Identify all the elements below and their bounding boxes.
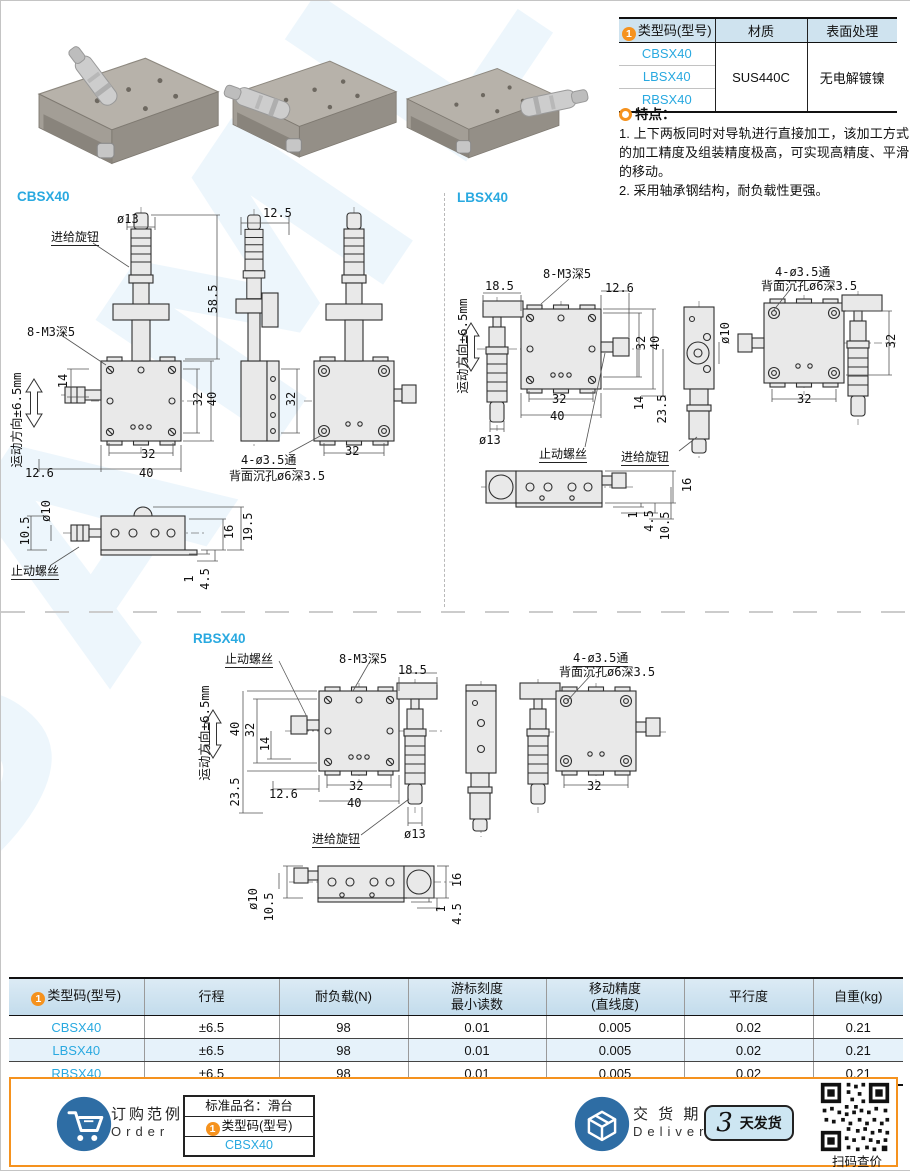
delivery-days: 3	[716, 1110, 733, 1136]
badge-1-icon: 1	[622, 27, 636, 41]
dim-32: 32	[884, 311, 898, 371]
dim-40: 40	[205, 369, 219, 429]
spec-header-weight: 自重(kg)	[813, 978, 903, 1016]
dim-4-5: 4.5	[642, 491, 656, 551]
standard-product-name: 标准品名：滑台	[185, 1097, 313, 1117]
spec-header-parallel: 平行度	[684, 978, 813, 1016]
weight-value: 0.21	[813, 1016, 903, 1039]
parallel-value: 0.02	[684, 1039, 813, 1062]
dim-14: 14	[632, 373, 646, 433]
footer-bar: 订购范例 Order 标准品名：滑台 1类型码(型号) CBSX40 交 货 期…	[9, 1077, 898, 1167]
dim-phi13: ø13	[404, 827, 426, 841]
surface-value: 无电解镀镍	[807, 43, 897, 113]
load-value: 98	[279, 1016, 408, 1039]
stop-screw-label: 止动螺丝	[11, 564, 59, 580]
dim-40: 40	[550, 409, 564, 423]
dim-32: 32	[634, 313, 648, 373]
example-model-link[interactable]: CBSX40	[185, 1137, 313, 1154]
feed-knob-label: 进给旋钮	[312, 832, 360, 848]
order-example-box: 标准品名：滑台 1类型码(型号) CBSX40	[183, 1095, 315, 1157]
dim-14: 14	[56, 351, 70, 411]
dim-32: 32	[349, 779, 363, 793]
feed-knob-label: 进给旋钮	[621, 450, 669, 466]
accuracy-value: 0.005	[546, 1016, 684, 1039]
weight-value: 0.21	[813, 1039, 903, 1062]
spec-table: 1类型码(型号) 行程 耐负载(N) 游标刻度 最小读数 移动精度 (直线度) …	[9, 977, 903, 1086]
dim-16: 16	[222, 502, 236, 562]
stop-screw-label: 止动螺丝	[225, 652, 273, 668]
thru-hole-note: 4-ø3.5通	[241, 453, 296, 469]
dim-1: 1	[434, 879, 448, 939]
accuracy-value: 0.005	[546, 1039, 684, 1062]
dim-12-5: 12.5	[263, 206, 292, 220]
dim-32: 32	[141, 447, 155, 461]
spec-row-cbsx40: CBSX40 ±6.5 98 0.01 0.005 0.02 0.21	[9, 1016, 903, 1039]
dim-18-5: 18.5	[398, 663, 427, 677]
dim-32: 32	[797, 392, 811, 406]
type-table-header-material: 材质	[715, 18, 807, 43]
badge-1-icon: 1	[206, 1122, 220, 1136]
photo-3	[407, 69, 589, 158]
dim-19-5: 19.5	[241, 497, 255, 557]
dim-18-5: 18.5	[485, 279, 514, 293]
features-title: 特点：	[619, 103, 909, 123]
motion-direction-label: 运动方向±6.5mm	[456, 271, 470, 421]
model-link-cbsx40[interactable]: CBSX40	[9, 1016, 144, 1039]
model-link-cbsx40[interactable]: CBSX40	[619, 43, 715, 66]
load-value: 98	[279, 1039, 408, 1062]
thread-note: 8-M3深5	[339, 652, 387, 666]
dim-phi13: ø13	[479, 433, 501, 447]
dim-40: 40	[139, 466, 153, 480]
feed-knob-label: 进给旋钮	[51, 230, 99, 246]
type-table-header-model: 1类型码(型号)	[619, 18, 715, 43]
spec-header-vernier: 游标刻度 最小读数	[408, 978, 546, 1016]
dim-4-5: 4.5	[198, 549, 212, 609]
dim-4-5: 4.5	[450, 884, 464, 944]
delivery-days-pill: 3 天发货	[704, 1105, 794, 1141]
delivery-unit: 天发货	[740, 1113, 782, 1133]
dim-23-5: 23.5	[655, 379, 669, 439]
feature-ring-icon	[619, 108, 632, 121]
dim-12-6: 12.6	[605, 281, 634, 295]
catalog-page: SAMLB	[0, 0, 910, 1171]
dim-32: 32	[552, 392, 566, 406]
section-title-rbsx40: RBSX40	[193, 631, 246, 646]
feature-item-2: 2. 采用轴承钢结构，耐负载性更强。	[619, 182, 909, 201]
dim-phi10: ø10	[246, 869, 260, 929]
dim-40: 40	[228, 699, 242, 759]
spec-header-load: 耐负载(N)	[279, 978, 408, 1016]
dim-32: 32	[345, 444, 359, 458]
dim-12-6: 12.6	[25, 466, 54, 480]
dim-58-5: 58.5	[206, 269, 220, 329]
dim-32: 32	[284, 369, 298, 429]
dim-1: 1	[626, 485, 640, 545]
dim-32: 32	[191, 369, 205, 429]
dim-40: 40	[347, 796, 361, 810]
thread-note: 8-M3深5	[543, 267, 591, 281]
section-title-cbsx40: CBSX40	[17, 189, 70, 204]
parallel-value: 0.02	[684, 1016, 813, 1039]
stop-screw-label: 止动螺丝	[539, 447, 587, 463]
dim-16: 16	[680, 455, 694, 515]
stroke-value: ±6.5	[144, 1016, 279, 1039]
dim-phi13: ø13	[117, 212, 139, 226]
spec-header-model: 1类型码(型号)	[9, 978, 144, 1016]
dim-32: 32	[243, 700, 257, 760]
type-table: 1类型码(型号) 材质 表面处理 CBSX40 LBSX40 RBSX40 SU…	[619, 17, 897, 113]
model-link-lbsx40[interactable]: LBSX40	[619, 66, 715, 89]
material-value: SUS440C	[715, 43, 807, 113]
spec-row-lbsx40: LBSX40 ±6.5 98 0.01 0.005 0.02 0.21	[9, 1039, 903, 1062]
cbore-note: 背面沉孔ø6深3.5	[559, 665, 655, 679]
model-link-lbsx40[interactable]: LBSX40	[9, 1039, 144, 1062]
cbore-note: 背面沉孔ø6深3.5	[761, 279, 857, 293]
feature-item-1: 1. 上下两板同时对导轨进行直接加工，该加工方式的加工精度及组装精度极高，可实现…	[619, 125, 909, 182]
qr-caption: 扫码查价	[817, 1151, 897, 1170]
dim-10-5: 10.5	[262, 877, 276, 937]
features-block: 特点： 1. 上下两板同时对导轨进行直接加工，该加工方式的加工精度及组装精度极高…	[619, 103, 909, 200]
delivery-box-icon	[573, 1095, 631, 1153]
dim-phi10: ø10	[39, 481, 53, 541]
cart-icon	[55, 1095, 113, 1153]
vernier-value: 0.01	[408, 1039, 546, 1062]
section-title-lbsx40: LBSX40	[457, 190, 508, 205]
photo-1	[39, 43, 218, 163]
dim-32: 32	[587, 779, 601, 793]
section-divider-horizontal	[1, 611, 910, 613]
motion-direction-label: 运动方向±6.5mm	[198, 658, 212, 808]
dim-1: 1	[182, 549, 196, 609]
stroke-value: ±6.5	[144, 1039, 279, 1062]
dim-23-5: 23.5	[228, 762, 242, 822]
cbore-note: 背面沉孔ø6深3.5	[229, 469, 325, 483]
section-divider-vertical	[444, 193, 445, 607]
dim-phi10: ø10	[718, 303, 732, 363]
dim-14: 14	[258, 714, 272, 774]
photo-2	[222, 61, 396, 157]
badge-1-icon: 1	[31, 992, 45, 1006]
dim-12-6: 12.6	[269, 787, 298, 801]
spec-header-accuracy: 移动精度 (直线度)	[546, 978, 684, 1016]
type-code-row: 1类型码(型号)	[185, 1117, 313, 1137]
type-table-header-surface: 表面处理	[807, 18, 897, 43]
dim-10-5: 10.5	[18, 501, 32, 561]
vernier-value: 0.01	[408, 1016, 546, 1039]
dim-10-5: 10.5	[658, 496, 672, 556]
spec-header-stroke: 行程	[144, 978, 279, 1016]
qr-code[interactable]	[819, 1081, 891, 1153]
thread-note: 8-M3深5	[27, 325, 75, 339]
order-example-label: 订购范例 Order	[111, 1103, 183, 1139]
cbsx40-drawing	[26, 207, 416, 565]
dim-40: 40	[648, 313, 662, 373]
motion-direction-label: 运动方向±6.5mm	[10, 345, 24, 495]
